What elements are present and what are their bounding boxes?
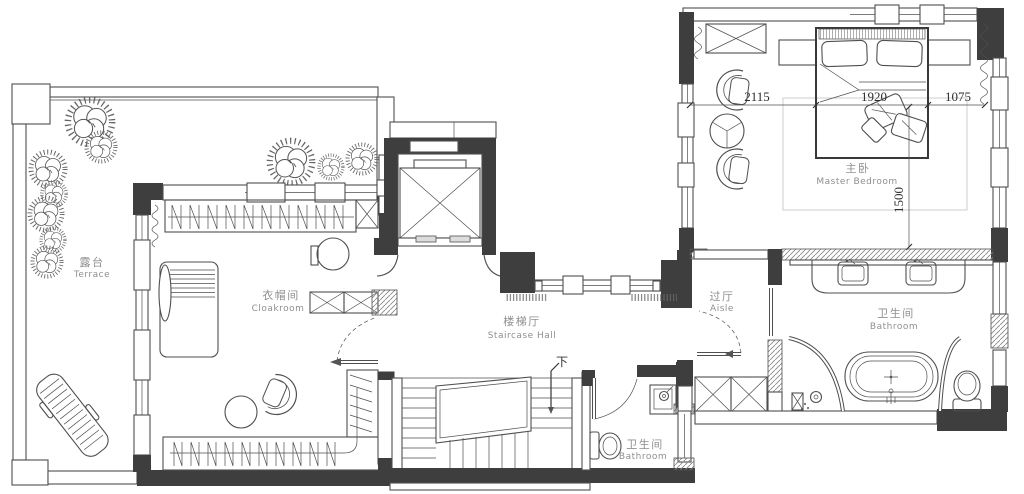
terrace-left-railing: [13, 124, 26, 460]
toilet: [590, 432, 621, 459]
bathtub: [845, 352, 938, 404]
aisle-label-en: Aisle: [710, 304, 734, 314]
dim-1075: 1075: [945, 89, 971, 104]
aisle-door: [697, 311, 741, 358]
threshold: [506, 294, 548, 301]
sink: [650, 385, 676, 414]
bottom-wall: [382, 468, 695, 483]
guest-bathroom-label-zh: 卫生间: [626, 437, 664, 451]
guest-bathroom-door: [594, 378, 637, 419]
master-bathroom-label-zh: 卫生间: [877, 306, 915, 320]
threshold: [630, 294, 680, 301]
aisle-label-zh: 过厅: [710, 290, 735, 303]
cloakroom: 衣帽间 Cloakroom: [133, 155, 410, 486]
elevator-door-leaf: [416, 236, 436, 242]
shower: [792, 392, 822, 411]
staircase-hall-label-zh: 楼梯厅: [503, 314, 541, 328]
elevator-door-leaf: [450, 236, 470, 242]
staircase: [392, 377, 584, 470]
dim-1920: 1920: [861, 89, 887, 104]
master-bedroom-label-en: Master Bedroom: [816, 177, 897, 187]
terrace-label-en: Terrace: [73, 270, 110, 280]
glass-partition: [789, 338, 960, 411]
stair-down-label: 下: [556, 355, 568, 369]
guest-bathroom-label-en: Bathroom: [619, 452, 667, 462]
dim-2115: 2115: [744, 89, 770, 104]
pillow: [877, 40, 923, 67]
nightstand: [928, 40, 970, 65]
terrace-corner-column-top: [12, 84, 50, 124]
clothes-rack-top: [165, 200, 356, 232]
master-bedroom-label-zh: 主卧: [846, 162, 871, 175]
elevator: [374, 122, 505, 277]
master-bathroom: 卫生间 Bathroom: [690, 249, 1008, 431]
floor-plan-drawing: 露台 Terrace: [0, 0, 1024, 494]
ottoman: [225, 396, 257, 428]
staircase-hall: 楼梯厅 Staircase Hall 下: [382, 314, 695, 490]
pillow: [822, 40, 868, 67]
curtain-icon: [695, 27, 702, 59]
lobby-arch-walls: [377, 255, 505, 277]
wardrobe: [706, 24, 766, 53]
cloakroom-door: [330, 317, 378, 366]
sun-lounger: [28, 367, 116, 464]
dim-1500: 1500: [891, 187, 906, 213]
headboard: [819, 29, 925, 39]
hall-window-wall: [500, 252, 692, 308]
aisle-cabinets: [695, 377, 767, 412]
master-bathroom-label-en: Bathroom: [870, 322, 918, 332]
terrace-corner-column-bottom: [12, 460, 48, 485]
terrace: 露台 Terrace: [12, 84, 394, 485]
bathroom-top-wall: [782, 249, 993, 260]
round-table: [710, 114, 744, 148]
aisle: 过厅 Aisle: [677, 250, 767, 412]
chaise-lounge: [159, 262, 218, 357]
stair-direction: 下: [548, 355, 568, 414]
armchair: [717, 149, 750, 189]
terrace-bottom-railing: [48, 471, 137, 484]
master-bedroom: 2115 1920 1075 1500 主卧 Master Bedroom: [678, 5, 1008, 262]
floor-plan: 露台 Terrace: [0, 0, 1024, 494]
side-table: [311, 238, 349, 270]
terrace-top-railing: [50, 87, 378, 97]
cabinet-crossed: [356, 200, 378, 228]
terrace-label-zh: 露台: [80, 255, 105, 269]
tub-faucet-icon: [887, 393, 895, 404]
cloakroom-bottom-wall: [137, 470, 410, 486]
nightstand: [779, 40, 816, 65]
cloakroom-label-en: Cloakroom: [252, 304, 305, 314]
hanger-icons: [174, 442, 335, 466]
stair-landing: [436, 377, 531, 443]
cabinet-crossed-pair: [310, 292, 378, 313]
armchair: [259, 372, 301, 419]
staircase-hall-label-en: Staircase Hall: [488, 331, 557, 341]
curtain-icon: [152, 205, 158, 247]
toilet: [953, 371, 981, 411]
cloakroom-label-zh: 衣帽间: [262, 288, 300, 302]
